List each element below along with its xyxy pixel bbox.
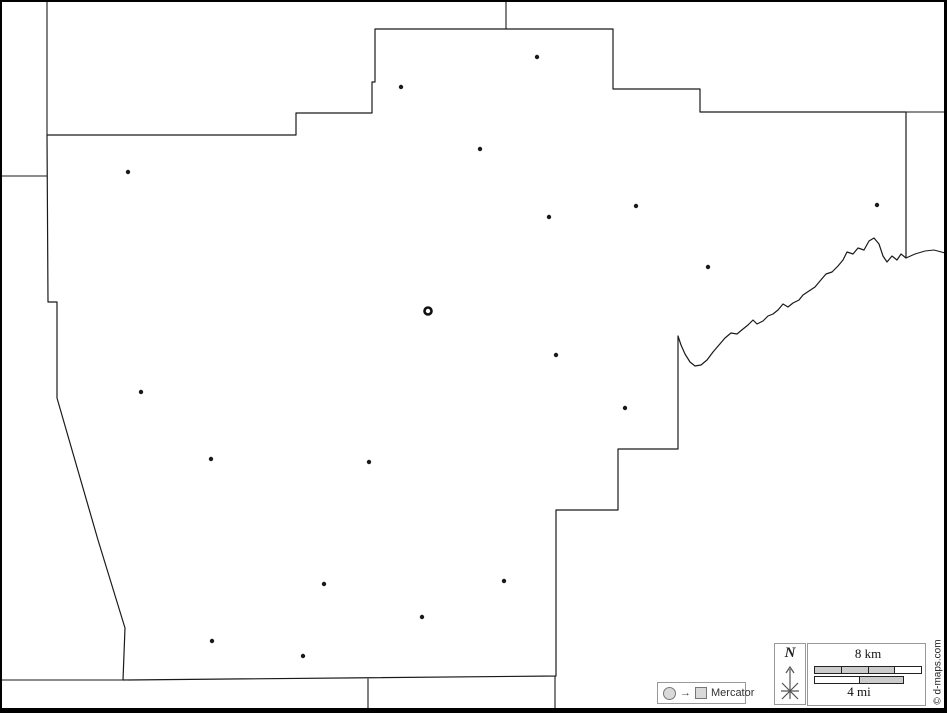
projection-label: Mercator bbox=[711, 687, 754, 699]
town-dot bbox=[367, 460, 371, 464]
mi-scale-label: 4 mi bbox=[814, 684, 904, 700]
town-dot bbox=[535, 55, 539, 59]
county-boundary bbox=[47, 29, 906, 680]
km-scale-label: 8 km bbox=[814, 646, 922, 662]
town-dot bbox=[126, 170, 130, 174]
scale-bar-segment bbox=[894, 667, 921, 673]
town-dot bbox=[547, 215, 551, 219]
town-dot bbox=[875, 203, 879, 207]
scale-bar-segment bbox=[815, 667, 841, 673]
arrow-right-icon: → bbox=[680, 688, 691, 699]
mi-scale-bar bbox=[814, 676, 904, 684]
scale-bar-segment bbox=[815, 677, 859, 683]
map-image-frame: → Mercator N 8 km 4 mi © d-maps.com bbox=[0, 0, 947, 713]
circle-icon bbox=[663, 687, 676, 700]
north-label: N bbox=[775, 645, 805, 662]
square-icon bbox=[695, 687, 707, 699]
town-dot bbox=[139, 390, 143, 394]
town-dot bbox=[209, 457, 213, 461]
town-dot bbox=[478, 147, 482, 151]
compass-rose-icon bbox=[777, 664, 803, 702]
scale-bar-segment bbox=[868, 667, 895, 673]
town-dot bbox=[322, 582, 326, 586]
town-dot bbox=[210, 639, 214, 643]
copyright-text: © d-maps.com bbox=[933, 639, 944, 704]
projection-legend: → Mercator bbox=[657, 682, 746, 704]
map-canvas bbox=[0, 0, 947, 713]
scale-bar-segment bbox=[859, 677, 904, 683]
km-scale-bar bbox=[814, 666, 922, 674]
scale-legend: 8 km 4 mi bbox=[807, 643, 926, 706]
county-seat-marker bbox=[425, 308, 432, 315]
compass-legend: N bbox=[774, 643, 806, 705]
scale-bar-segment bbox=[841, 667, 868, 673]
town-dot bbox=[554, 353, 558, 357]
town-dot bbox=[502, 579, 506, 583]
town-dot bbox=[420, 615, 424, 619]
town-dot bbox=[634, 204, 638, 208]
town-dot bbox=[623, 406, 627, 410]
town-dot bbox=[301, 654, 305, 658]
town-dot bbox=[399, 85, 403, 89]
neighbor-boundary-line bbox=[906, 250, 945, 258]
town-dot bbox=[706, 265, 710, 269]
